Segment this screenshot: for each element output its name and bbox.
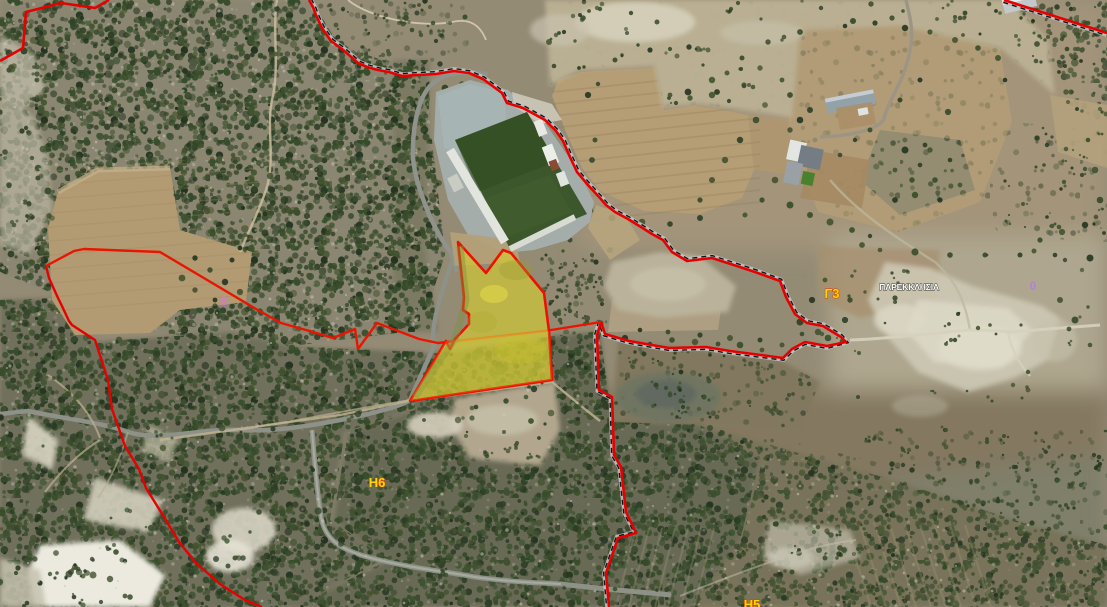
svg-text:8: 8: [221, 294, 228, 308]
svg-text:Η5: Η5: [744, 597, 761, 607]
svg-text:Γ3: Γ3: [824, 286, 839, 301]
svg-text:Η6: Η6: [369, 475, 386, 490]
svg-text:0: 0: [1030, 279, 1037, 293]
svg-text:ΠΑΡΕΚΚΛΗΣΙΑ: ΠΑΡΕΚΚΛΗΣΙΑ: [879, 282, 939, 292]
